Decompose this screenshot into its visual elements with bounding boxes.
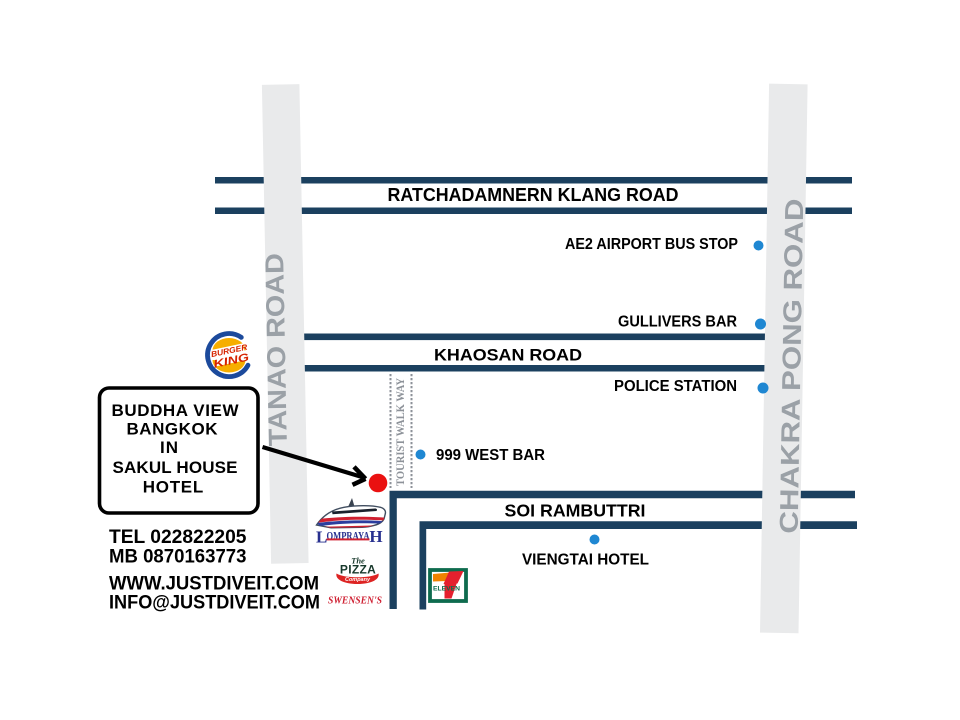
svg-text:H: H — [369, 527, 382, 546]
svg-text:SAKUL HOUSE: SAKUL HOUSE — [113, 458, 238, 477]
svg-text:SOI RAMBUTTRI: SOI RAMBUTTRI — [505, 501, 646, 521]
svg-text:POLICE STATION: POLICE STATION — [614, 378, 737, 395]
svg-text:IN: IN — [160, 438, 178, 457]
svg-text:PIZZA: PIZZA — [340, 563, 376, 577]
svg-text:RATCHADAMNERN KLANG ROAD: RATCHADAMNERN KLANG ROAD — [388, 185, 679, 205]
svg-text:999 WEST BAR: 999 WEST BAR — [436, 447, 545, 464]
svg-text:WWW.JUSTDIVEIT.COM: WWW.JUSTDIVEIT.COM — [109, 574, 319, 595]
svg-text:VIENGTAI HOTEL: VIENGTAI HOTEL — [522, 552, 649, 569]
svg-text:CHAKRA PONG ROAD: CHAKRA PONG ROAD — [774, 198, 810, 533]
svg-text:TANAO ROAD: TANAO ROAD — [259, 253, 293, 447]
svg-text:ELEVEN: ELEVEN — [433, 587, 460, 593]
svg-text:TOURIST WALK WAY: TOURIST WALK WAY — [395, 377, 407, 486]
svg-text:HOTEL: HOTEL — [143, 478, 204, 497]
svg-text:OMPRAYA: OMPRAYA — [327, 529, 370, 543]
svg-text:GULLIVERS BAR: GULLIVERS BAR — [618, 314, 737, 331]
svg-text:INFO@JUSTDIVEIT.COM: INFO@JUSTDIVEIT.COM — [109, 593, 320, 614]
svg-text:BUDDHA VIEW: BUDDHA VIEW — [112, 401, 240, 420]
svg-text:MB 0870163773: MB 0870163773 — [109, 546, 247, 568]
svg-text:BANGKOK: BANGKOK — [127, 420, 219, 439]
svg-text:AE2 AIRPORT BUS STOP: AE2 AIRPORT BUS STOP — [565, 236, 738, 253]
svg-text:Company: Company — [345, 577, 371, 583]
svg-text:SWENSEN'S: SWENSEN'S — [328, 595, 382, 607]
svg-text:KHAOSAN ROAD: KHAOSAN ROAD — [434, 346, 582, 365]
